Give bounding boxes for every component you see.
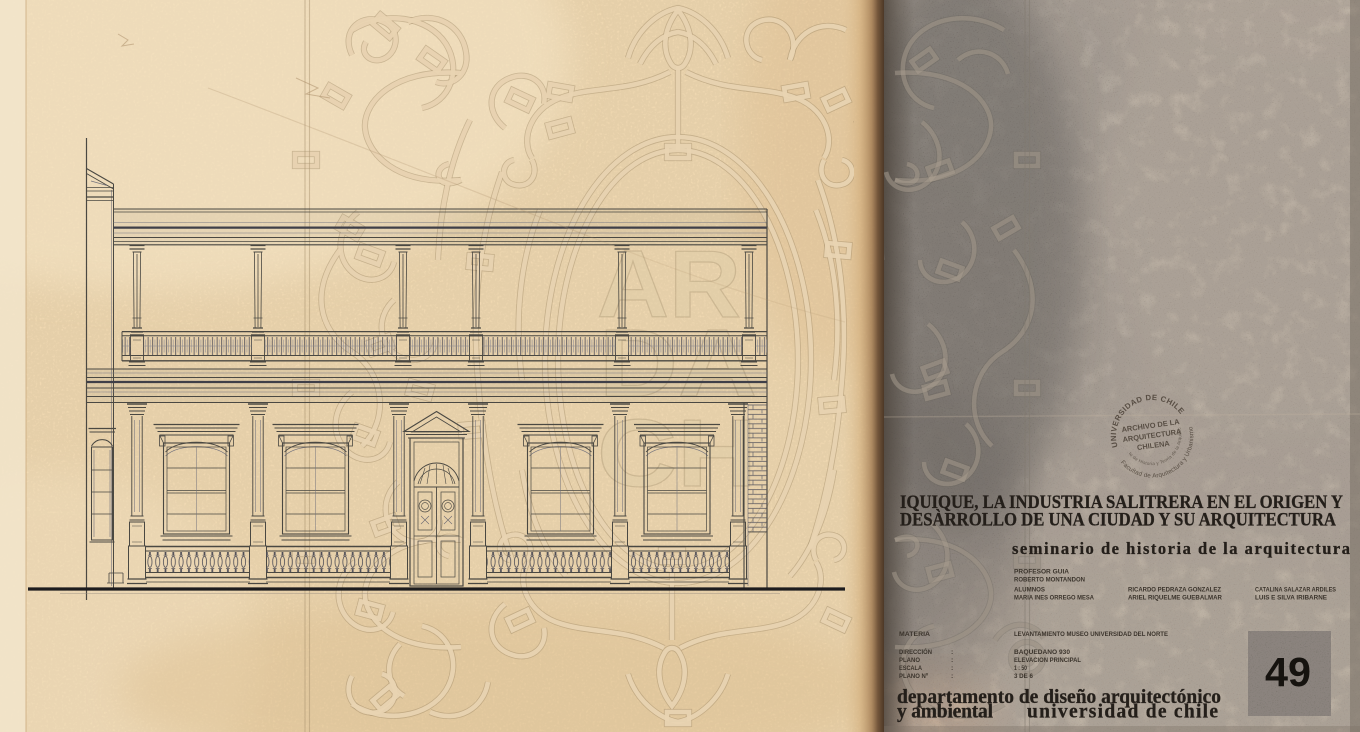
svg-text:MATERIA: MATERIA <box>899 631 930 638</box>
svg-text:y ambiental: y ambiental <box>897 702 994 723</box>
svg-text:PLANO: PLANO <box>899 657 920 664</box>
svg-text:BAQUEDANO 930: BAQUEDANO 930 <box>1014 649 1070 656</box>
svg-text:1 : 50: 1 : 50 <box>1014 665 1027 672</box>
svg-text:ESCALA: ESCALA <box>899 665 922 672</box>
svg-text:3 DE 6: 3 DE 6 <box>1014 673 1033 680</box>
svg-text:ALUMNOS: ALUMNOS <box>1014 587 1045 594</box>
svg-text:49: 49 <box>1265 649 1311 695</box>
svg-text:DIRECCIÓN: DIRECCIÓN <box>899 647 932 656</box>
svg-text::: : <box>951 657 953 664</box>
svg-text:MARIA INES ORREGO MESA: MARIA INES ORREGO MESA <box>1014 595 1094 602</box>
svg-text::: : <box>951 665 953 672</box>
svg-text::: : <box>951 649 953 656</box>
svg-text:PLANO Nº: PLANO Nº <box>899 673 928 680</box>
svg-text:LUIS E SILVA IRIBARNE: LUIS E SILVA IRIBARNE <box>1255 595 1327 602</box>
svg-text:CATALINA SALAZAR ARDILES: CATALINA SALAZAR ARDILES <box>1255 587 1336 594</box>
svg-text:ARIEL RIQUELME GUEBALMAR: ARIEL RIQUELME GUEBALMAR <box>1128 595 1222 602</box>
svg-text:PROFESOR GUIA: PROFESOR GUIA <box>1014 569 1069 576</box>
svg-text:LEVANTAMIENTO MUSEO UNIVER: LEVANTAMIENTO MUSEO UNIVERSIDAD DEL NORT… <box>1014 631 1168 638</box>
svg-text:DESÀRROLLO DE UNA CIUDAD Y: DESÀRROLLO DE UNA CIUDAD Y SU ARQUITECTU… <box>900 509 1337 531</box>
svg-text:ELEVACION PRINCIPAL: ELEVACION PRINCIPAL <box>1014 657 1081 664</box>
svg-text:ROBERTO MONTANDON: ROBERTO MONTANDON <box>1014 577 1085 584</box>
svg-text::: : <box>951 673 953 680</box>
svg-text:seminario de historia de la ar: seminario de historia de la arquitectura <box>1012 539 1350 558</box>
svg-text:universidad de chile: universidad de chile <box>1027 702 1218 723</box>
svg-text:RICARDO PEDRAZA GONZALEZ: RICARDO PEDRAZA GONZALEZ <box>1128 587 1221 594</box>
